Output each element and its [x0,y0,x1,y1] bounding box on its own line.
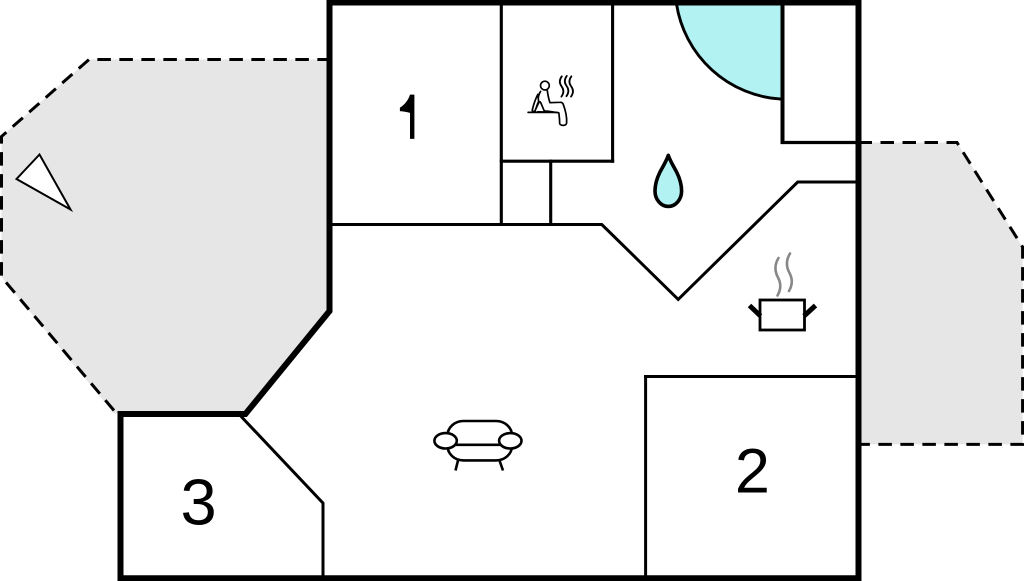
svg-text:3: 3 [181,466,217,539]
svg-text:2: 2 [735,437,770,507]
